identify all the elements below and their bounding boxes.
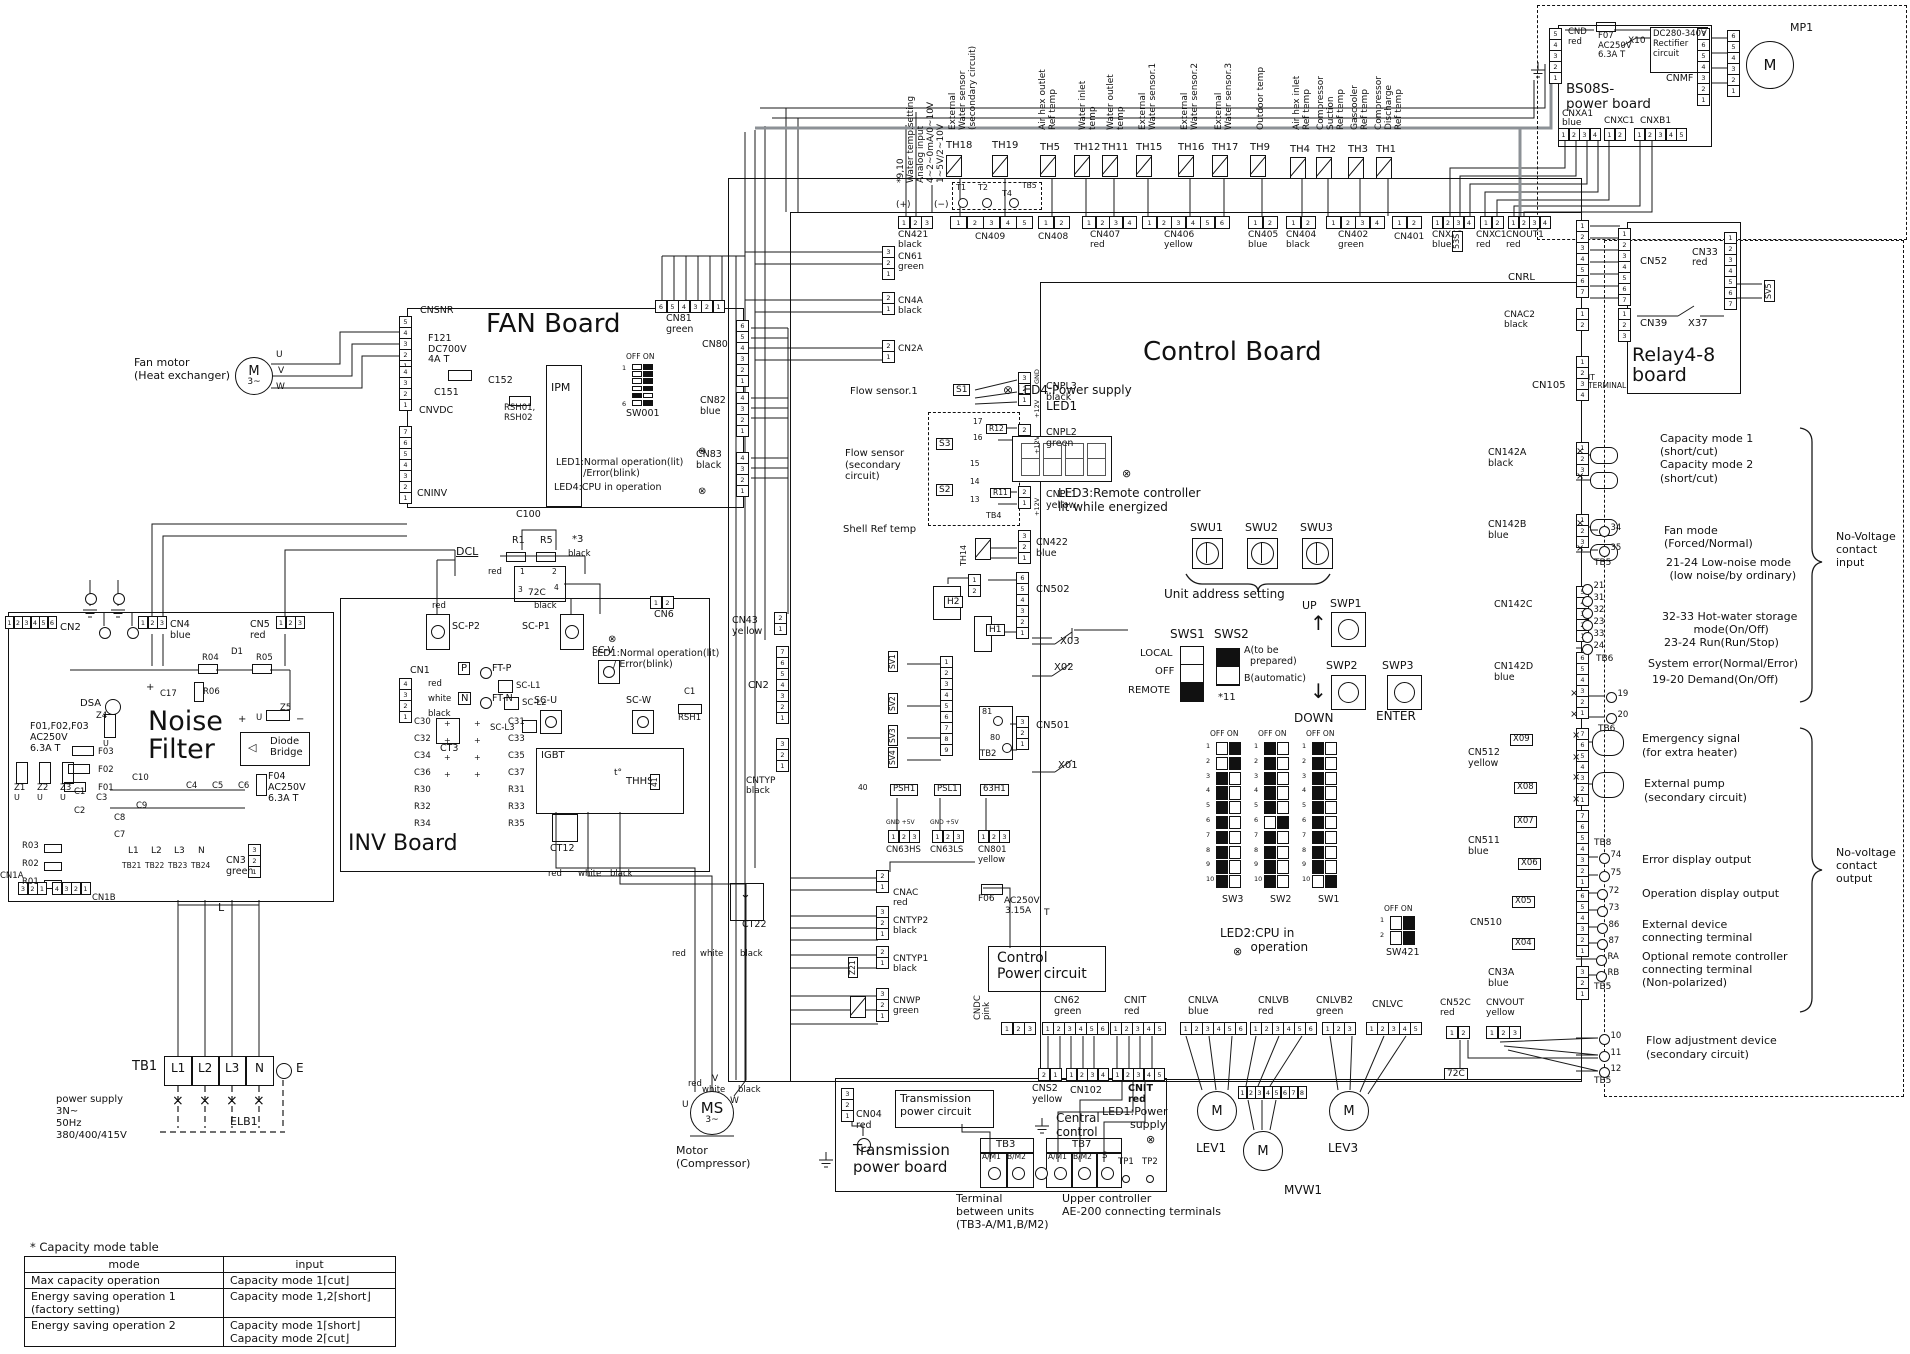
cntyp2-connector: 321 xyxy=(876,906,889,939)
sw001-off-cell xyxy=(632,364,642,370)
cn52c-connector: 12 xyxy=(1446,1026,1469,1039)
terminal xyxy=(480,697,492,709)
tb5-label: TB5 xyxy=(1594,558,1611,568)
mark-label: × xyxy=(253,1094,265,1110)
sw421-label: SW421 xyxy=(1386,948,1420,959)
sw3-on-cell xyxy=(1229,786,1241,799)
thermistor-icon xyxy=(1074,155,1090,177)
cnxa2-connector: 1234 xyxy=(1432,216,1474,229)
sw3-on-cell xyxy=(1229,772,1241,785)
cnxc1-connector: 12 xyxy=(1480,216,1503,229)
thermistor-icon xyxy=(1290,157,1306,179)
sw2-off-cell xyxy=(1264,786,1276,799)
sw001-on-cell xyxy=(643,371,653,377)
r35-label: R35 xyxy=(508,820,525,830)
ft-n-label: FT-N xyxy=(492,694,513,705)
red-label: red xyxy=(688,1080,702,1090)
sw3-row-number: 3 xyxy=(1206,772,1210,780)
sw2-row-number: 7 xyxy=(1254,831,1258,839)
black-label: black xyxy=(610,870,633,880)
+-label: + xyxy=(444,720,451,729)
thermistor-icon xyxy=(946,155,962,177)
thermistor-icon xyxy=(1316,157,1332,179)
water-outlet-label: Water outlet temp xyxy=(1106,74,1126,130)
terminal-number: 75 xyxy=(1611,868,1622,878)
led1-power-label: LED1:Power supply xyxy=(1102,1106,1168,1131)
cn39-connector: 123 xyxy=(1618,308,1631,341)
w-label: W xyxy=(730,1096,739,1106)
mark-label: × xyxy=(1572,794,1580,805)
terminal xyxy=(988,1167,1001,1180)
upper-controller-label: Upper controller AE-200 connecting termi… xyxy=(1062,1192,1221,1218)
terminal-number: 21 xyxy=(1594,581,1605,591)
terminal-number: 31 xyxy=(1594,593,1605,603)
local-label: LOCAL xyxy=(1140,648,1172,659)
ipm-label: IPM xyxy=(551,382,570,394)
r33-label: R33 xyxy=(508,803,525,813)
cn510-connector: 654321 xyxy=(1576,890,1589,956)
sw2-row-number: 8 xyxy=(1254,846,1258,854)
f02-label: F02 xyxy=(98,766,114,776)
u-label: U xyxy=(682,1100,689,1110)
cn402-connector: 1234 xyxy=(1326,216,1384,229)
s2-label: S2 xyxy=(936,484,953,496)
cn2a-label: CN2A xyxy=(898,344,923,354)
f06-label: F06 xyxy=(978,894,995,904)
81-label: 81 xyxy=(982,708,992,717)
cn3a-label: CN3A blue xyxy=(1488,968,1514,989)
terminal-34 xyxy=(1599,526,1610,537)
t1-label: T1 xyxy=(956,184,966,193)
cn1b-label: CN1B xyxy=(92,894,116,904)
c6-label: C6 xyxy=(238,782,249,792)
th11-label: TH11 xyxy=(1102,142,1128,153)
sw001-off-cell xyxy=(632,371,642,377)
40-label: 40 xyxy=(858,784,868,792)
cnwp-connector: 321 xyxy=(876,988,889,1021)
sw2-on-cell xyxy=(1277,786,1289,799)
sw001-row-number: 6 xyxy=(622,400,626,408)
swu3-rotary-switch xyxy=(1302,538,1333,569)
dsa-label: DSA xyxy=(80,698,101,709)
sw3-row-number: 8 xyxy=(1206,846,1210,854)
r04-label: R04 xyxy=(202,654,219,664)
cn801-connector: 123 xyxy=(978,830,1010,843)
terminal xyxy=(85,593,97,605)
x06-label: X06 xyxy=(1518,858,1541,870)
cnit2-connector: 12345 xyxy=(1112,1068,1165,1081)
sw3-off-cell xyxy=(1216,801,1228,814)
rsh01-label: RSH01, RSH02 xyxy=(504,404,535,423)
s1-label: S1 xyxy=(953,384,970,396)
sw1-off-cell xyxy=(1312,846,1324,859)
cn421-connector: 123 xyxy=(898,216,933,229)
sw1-on-cell xyxy=(1325,875,1337,888)
sw2-on-cell xyxy=(1277,801,1289,814)
tb3-label: TB3 xyxy=(996,1139,1015,1150)
sw2-off-cell xyxy=(1264,801,1276,814)
sw3-on-cell xyxy=(1229,875,1241,888)
72c-label: 72C xyxy=(1444,1068,1468,1080)
cn102-label: CN102 xyxy=(1070,1086,1102,1097)
r31-label: R31 xyxy=(508,786,525,796)
r32-label: R32 xyxy=(414,803,431,813)
17-label: 17 xyxy=(973,418,983,426)
flow-adjustment-device-label: Flow adjustment device (secondary circui… xyxy=(1646,1034,1777,1062)
cnd-label: CND red xyxy=(1568,28,1587,47)
cnrl-connector: 1234567 xyxy=(1576,220,1589,297)
a/m1-label: A/M1 xyxy=(1048,1153,1067,1161)
ct22-label: CT22 xyxy=(742,920,767,931)
sw1-on-cell xyxy=(1325,772,1337,785)
swp3-button xyxy=(1387,675,1422,710)
sw2-off-cell xyxy=(1264,846,1276,859)
black-label: black xyxy=(428,710,451,720)
terminal xyxy=(993,716,1003,726)
cn402-label: CN402 green xyxy=(1338,230,1368,250)
control-board-label: Control Board xyxy=(1143,338,1322,367)
cn80-label: CN80 xyxy=(702,340,728,351)
cn404-label: CN404 black xyxy=(1286,230,1316,250)
air-hex-outlet-label: Air hex outlet Ref temp xyxy=(1038,69,1058,130)
+12v-label: +12V xyxy=(1034,436,1041,454)
cn3-label: CN3 green xyxy=(226,856,253,877)
terminal-number: 74 xyxy=(1611,850,1622,860)
cnmf-label: CNMF xyxy=(1666,74,1693,85)
cnlvb-label: CNLVB red xyxy=(1258,996,1289,1017)
cnac2-label: CNAC2 black xyxy=(1504,310,1535,330)
terminal-RB xyxy=(1596,971,1607,982)
sw2-on-cell xyxy=(1277,816,1289,829)
cnac-label: CNAC red xyxy=(893,888,918,908)
sw1-off-cell xyxy=(1312,875,1324,888)
swp1-label: SWP1 xyxy=(1330,598,1362,610)
sw1-row-number: 8 xyxy=(1302,846,1306,854)
sw3-on-cell xyxy=(1229,757,1241,770)
capacity-table-cell: Capacity mode 1⌈cut⌋ xyxy=(224,1273,396,1289)
transmission-label: Transmission power board xyxy=(853,1142,950,1177)
r1-label: R1 xyxy=(512,536,525,547)
sw1-off-cell xyxy=(1312,772,1324,785)
d1-label: D1 xyxy=(231,648,243,658)
b/m2-label: B/M2 xyxy=(1007,1153,1026,1161)
sw2-off-cell xyxy=(1264,772,1276,785)
sw2-off-cell xyxy=(1264,875,1276,888)
fuse-f04 xyxy=(256,774,267,796)
z4-label: Z4 xyxy=(96,712,107,722)
cn404-connector: 12 xyxy=(1286,216,1315,229)
shell-ref-temp-label: Shell Ref temp xyxy=(843,524,916,535)
terminal-RA xyxy=(1596,955,1607,966)
capacity-table-row: Energy saving operation 1 (factory setti… xyxy=(25,1289,396,1318)
terminal-74 xyxy=(1599,853,1610,864)
swu1-label: SWU1 xyxy=(1190,522,1223,534)
sw1-row-number: 9 xyxy=(1302,860,1306,868)
no-voltage-label: No-Voltage contact input xyxy=(1836,530,1896,570)
cn43-connector: 21 xyxy=(774,612,787,634)
inv-board-label: INV Board xyxy=(348,832,458,857)
ft-p-label: FT-P xyxy=(492,664,511,675)
sw2-on-cell xyxy=(1277,772,1289,785)
terminal xyxy=(127,627,139,639)
external-label: External Water sensor.3 xyxy=(1214,63,1234,130)
sw421-row-number: 1 xyxy=(1380,916,1384,924)
tb4-label: TB4 xyxy=(986,512,1001,521)
fan-motor-label: Fan motor (Heat exchanger) xyxy=(134,356,230,382)
sw1-on-cell xyxy=(1325,860,1337,873)
fuse-f121 xyxy=(448,370,472,381)
r03-label: R03 xyxy=(22,842,39,852)
r30-label: R30 xyxy=(414,786,431,796)
down-label: DOWN xyxy=(1294,712,1334,725)
u-label: U xyxy=(14,794,20,803)
th14-label: TH14 xyxy=(960,545,969,566)
sw3-row-number: 6 xyxy=(1206,816,1210,824)
cntyp-label: CNTYP black xyxy=(746,776,775,796)
sw1-row-number: 4 xyxy=(1302,786,1306,794)
cn407-connector: 1234 xyxy=(1082,216,1136,229)
f03-label: F03 xyxy=(98,748,114,758)
sc-u-label: SC-U xyxy=(534,696,557,707)
19-20-demand-on/off-label: 19-20 Demand(On/Off) xyxy=(1652,674,1778,686)
terminal xyxy=(1035,1167,1048,1180)
cn61-connector: 321 xyxy=(882,246,895,279)
sw3-on-cell xyxy=(1229,816,1241,829)
lev3-label: LEV3 xyxy=(1328,1142,1358,1155)
unit-address-setting-label: Unit address setting xyxy=(1164,588,1285,601)
sw1-row-number: 1 xyxy=(1302,742,1306,750)
c17-label: C17 xyxy=(160,690,177,700)
th1-label: TH1 xyxy=(1376,144,1396,155)
terminal-number: 73 xyxy=(1609,903,1620,913)
sw1-off-cell xyxy=(1312,786,1324,799)
cn82-label: CN82 blue xyxy=(700,396,726,417)
thermistor-icon xyxy=(1348,157,1364,179)
red-label: red xyxy=(548,870,562,880)
sc-v-label: SC-V xyxy=(592,646,614,657)
cn33-connector: 1234567 xyxy=(1724,232,1737,309)
mark-label: ⊗ xyxy=(1122,468,1131,480)
sw001-row-number: 1 xyxy=(622,364,626,372)
sw1-row-number: 10 xyxy=(1302,875,1310,883)
c100-label: C100 xyxy=(516,510,541,521)
mark-label: × xyxy=(1576,446,1584,457)
black-label: black xyxy=(738,1086,761,1096)
mvw1-motor: M xyxy=(1243,1131,1283,1171)
dc280-340v-label: DC280-340V Rectifier circuit xyxy=(1653,30,1707,59)
external-label: External Water sensor.1 xyxy=(1138,63,1158,130)
sw421-row-number: 2 xyxy=(1380,931,1384,939)
z5-label: Z5 xyxy=(280,704,291,714)
terminal-number: RA xyxy=(1608,952,1619,962)
sw2-row-number: 2 xyxy=(1254,757,1258,765)
terminal-number: 20 xyxy=(1618,710,1629,720)
white-label: white xyxy=(702,1086,725,1096)
th17-label: TH17 xyxy=(1212,142,1238,153)
terminal-number: 87 xyxy=(1609,936,1620,946)
c7-label: C7 xyxy=(114,831,125,841)
res-r1 xyxy=(506,552,526,562)
x03-label: X03 xyxy=(1060,636,1080,647)
cn04-label: CN04 red xyxy=(856,1110,882,1131)
x10-label: X10 xyxy=(1628,36,1646,46)
t-label: t° xyxy=(614,768,622,778)
tp1-label: TP1 xyxy=(1118,1158,1134,1168)
external-label: External Water sensor.2 xyxy=(1180,63,1200,130)
thermistor-icon xyxy=(1136,155,1152,177)
terminal-number: 32 xyxy=(1594,605,1605,615)
cn142a-label: CN142A black xyxy=(1488,448,1526,469)
flow-sensor-label: Flow sensor (secondary circuit) xyxy=(845,448,904,483)
sw001-on-cell xyxy=(643,400,653,406)
terminal xyxy=(1002,743,1012,753)
cn1a-label: CN1A xyxy=(0,872,24,882)
sw2-row-number: 3 xyxy=(1254,772,1258,780)
terminal xyxy=(1054,1167,1067,1180)
sc-l1-box xyxy=(498,680,513,693)
compressor-motor: MS3~ xyxy=(690,1091,734,1135)
mark-label: ⊗ xyxy=(608,634,616,645)
h2-label: H2 xyxy=(944,596,963,608)
elb1-label: ELB1 xyxy=(230,1116,258,1128)
t-label: T xyxy=(1044,908,1050,918)
r01-label: R01 xyxy=(22,878,39,888)
cn6-label: CN6 xyxy=(654,610,674,621)
e-label: E xyxy=(296,1062,304,1075)
terminal xyxy=(1146,1175,1154,1183)
cnvdc-connector: 4321 xyxy=(399,366,412,410)
cnvout-connector: 123 xyxy=(1486,1026,1521,1039)
thermistor-icon xyxy=(1178,155,1194,177)
cn52-connector: 1234567 xyxy=(1618,228,1631,305)
terminal-24 xyxy=(1582,644,1593,655)
sc-w-label: SC-W xyxy=(626,696,651,707)
u-label: U xyxy=(256,714,262,724)
terminal-number: 34 xyxy=(1611,523,1622,533)
relay4-8-label: Relay4-8 board xyxy=(1632,346,1715,386)
sw2-row-number: 10 xyxy=(1254,875,1262,883)
sw3-row-number: 4 xyxy=(1206,786,1210,794)
mark-label: − xyxy=(296,714,304,725)
sw1-on-cell xyxy=(1325,846,1337,859)
c1-label: C1 xyxy=(684,688,695,698)
sw2-on-cell xyxy=(1277,846,1289,859)
sc-l1-label: SC-L1 xyxy=(516,682,541,692)
*11-label: *11 xyxy=(1218,692,1236,703)
cnxc1-label: CNXC1 xyxy=(1604,116,1635,126)
res-r03 xyxy=(44,844,62,853)
cn501-label: CN501 xyxy=(1036,720,1070,731)
cninv-label: CNINV xyxy=(417,489,447,500)
t4-label: T4 xyxy=(1002,190,1012,199)
cn501-connector: 321 xyxy=(1016,716,1029,749)
thermistor-icon xyxy=(1250,155,1266,177)
mvw1-label: MVW1 xyxy=(1284,1184,1322,1197)
n-label: N xyxy=(255,1062,264,1075)
sw2-on-cell xyxy=(1277,742,1289,755)
mark-label: ⊗ xyxy=(698,486,706,497)
sw3-row-number: 2 xyxy=(1206,757,1210,765)
terminal-72 xyxy=(1597,889,1608,900)
terminal-73 xyxy=(1597,906,1608,917)
cns2-connector: 21 xyxy=(1038,1068,1061,1081)
sw001-label: SW001 xyxy=(626,409,660,420)
sw001-on-cell xyxy=(643,386,653,392)
tb22-label: TB22 xyxy=(145,862,164,870)
operation-display-output-label: Operation display output xyxy=(1642,888,1779,900)
cn04-connector: 321 xyxy=(841,1088,854,1121)
cn33-label: CN33 red xyxy=(1692,248,1718,268)
x05-label: X05 xyxy=(1512,896,1535,908)
sw1-off-cell xyxy=(1312,757,1324,770)
cnlvc-label: CNLVC xyxy=(1372,1000,1403,1011)
r05-label: R05 xyxy=(256,654,273,664)
+-label: (+) xyxy=(896,200,911,210)
sw2-row-number: 9 xyxy=(1254,860,1258,868)
cnlva-connector: 123456 xyxy=(1180,1022,1246,1035)
cn406-label: CN406 yellow xyxy=(1164,230,1194,250)
led4-cpu-in-operation-label: LED4:CPU in operation xyxy=(554,483,661,494)
th2-label: TH2 xyxy=(1316,144,1336,155)
red-label: red xyxy=(432,602,446,612)
mark-label: ↓ xyxy=(740,888,751,903)
cnit-label: CNIT red xyxy=(1128,1084,1153,1105)
terminal-35 xyxy=(1599,546,1610,557)
sw3-label: SW3 xyxy=(1222,895,1243,906)
cn3a-connector: 321 xyxy=(1576,966,1589,999)
psh1-label: PSH1 xyxy=(890,784,918,796)
tp2-label: TP2 xyxy=(1142,1158,1158,1168)
cnit-connector: 12345 xyxy=(1110,1022,1165,1035)
sw1-off-cell xyxy=(1312,742,1324,755)
sw001-off-cell xyxy=(632,400,642,406)
thermistor-icon xyxy=(1102,155,1118,177)
cn407-label: CN407 red xyxy=(1090,230,1120,250)
sw2-header: OFF ON xyxy=(1258,729,1286,738)
cns2-label: CNS2 yellow xyxy=(1032,1084,1062,1105)
53s-label: 53S xyxy=(1452,231,1463,252)
mp1-conn-connector: 654321 xyxy=(1727,30,1740,96)
external-label: External Water sensor (secondary circuit… xyxy=(948,46,978,130)
l1-label: L1 xyxy=(171,1062,185,1075)
sw3-header: OFF ON xyxy=(1210,729,1238,738)
red-label: red xyxy=(672,950,686,960)
noise-label: Noise Filter xyxy=(148,708,223,765)
cn62-label: CN62 green xyxy=(1054,996,1081,1017)
cnsnr-label: CNSNR xyxy=(420,306,453,317)
sw001-off-cell xyxy=(632,378,642,384)
cn405-connector: 12 xyxy=(1248,216,1277,229)
f07-label: F07 AC250V 6.3A T xyxy=(1598,32,1632,61)
sw421-on-cell xyxy=(1403,931,1415,945)
+12v-label: +12V xyxy=(1034,400,1041,418)
cnxc1-b-connector: 12 xyxy=(1604,128,1625,141)
cn409-connector: 12345 xyxy=(950,216,1033,229)
terminal-32 xyxy=(1582,608,1593,619)
cnxa1-connector: 1234 xyxy=(1558,128,1600,141)
swu1-rotary-switch xyxy=(1192,538,1223,569)
+12v-label: +12V xyxy=(1034,498,1041,516)
lev1-label: LEV1 xyxy=(1196,1142,1226,1155)
terminal xyxy=(637,716,649,728)
sw421-off-cell xyxy=(1390,931,1402,945)
compressor-label: Compressor Suction Ref temp xyxy=(1316,76,1346,130)
rsh1-label: RSH1 xyxy=(678,714,701,724)
cn80-connector: 654321 xyxy=(736,320,749,386)
capacity-mode-table: * Capacity mode table mode input Max cap… xyxy=(24,1240,396,1347)
sw3-off-cell xyxy=(1216,772,1228,785)
cn2-noise-connector: 123456 xyxy=(5,616,56,629)
